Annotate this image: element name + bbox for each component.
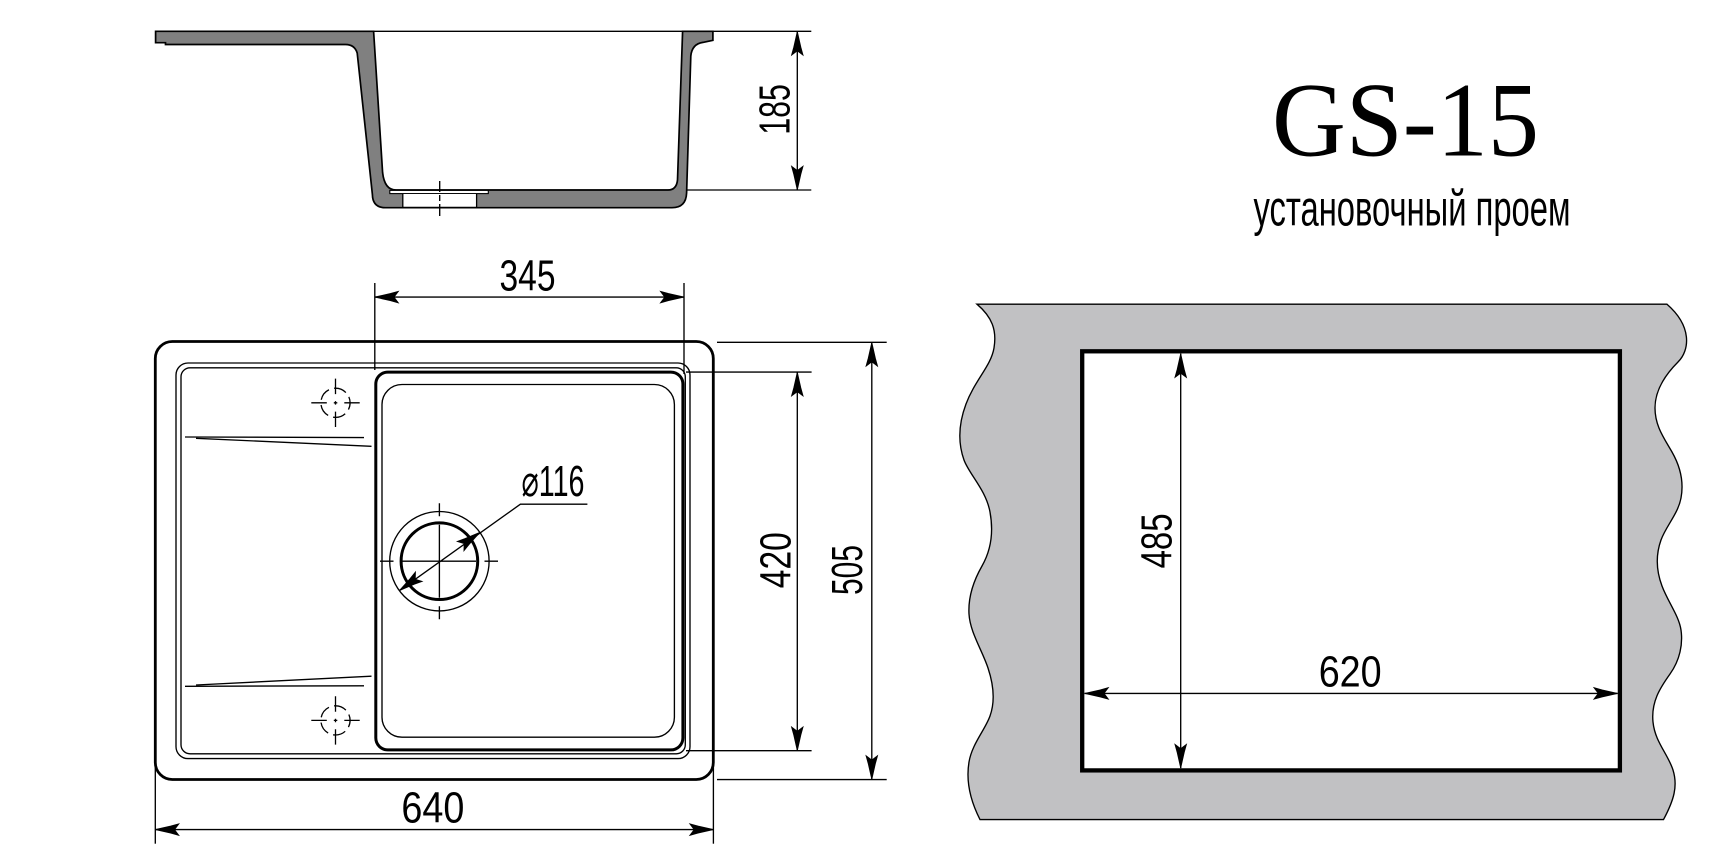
svg-text:GS-15: GS-15 bbox=[1272, 61, 1539, 178]
svg-text:505: 505 bbox=[823, 545, 872, 595]
svg-text:185: 185 bbox=[751, 84, 800, 134]
svg-text:⌀116: ⌀116 bbox=[522, 457, 585, 506]
svg-text:345: 345 bbox=[500, 251, 556, 300]
svg-text:620: 620 bbox=[1319, 648, 1382, 697]
svg-text:установочный проем: установочный проем bbox=[1254, 179, 1571, 236]
svg-text:640: 640 bbox=[401, 783, 464, 832]
svg-text:485: 485 bbox=[1132, 513, 1181, 568]
svg-text:420: 420 bbox=[752, 532, 801, 588]
